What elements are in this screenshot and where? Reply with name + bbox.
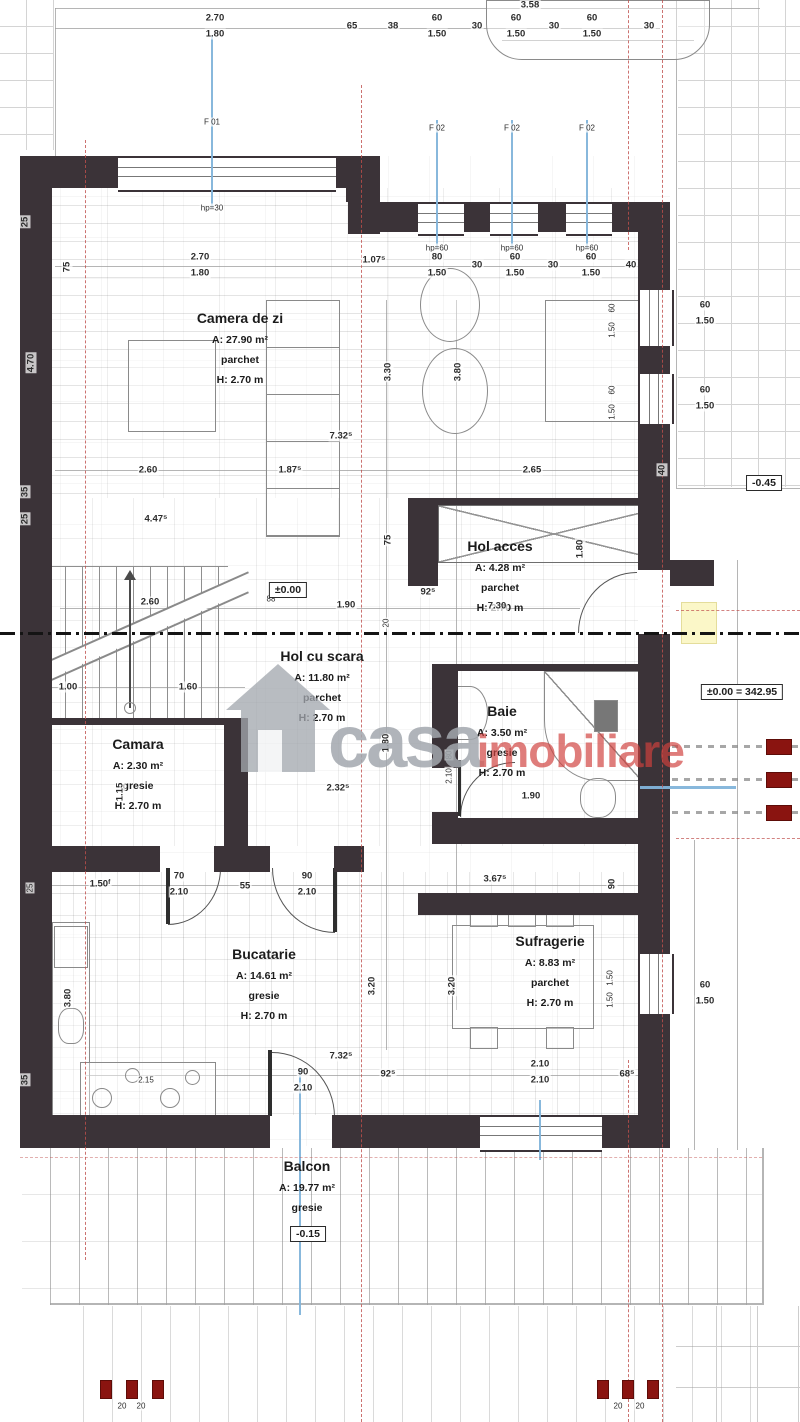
dimension-label: F 01 — [203, 118, 221, 127]
wall-segment — [638, 346, 670, 374]
dimension-label: 20 — [613, 1402, 624, 1411]
room-floor: gresie — [477, 747, 527, 759]
dimension-label: 35 — [20, 1074, 31, 1087]
window-centerline — [511, 120, 513, 248]
dimension-label: 68⁵ — [618, 1069, 635, 1080]
red-marker — [126, 1380, 138, 1399]
red-marker — [100, 1380, 112, 1399]
axis-line — [361, 85, 362, 1422]
wall-segment — [438, 498, 670, 505]
wall-segment — [334, 846, 364, 872]
axis-line — [85, 140, 86, 1260]
wall-segment — [20, 156, 52, 1148]
room-area: A: 8.83 m² — [515, 957, 584, 969]
dimension-label: 3.67⁵ — [483, 874, 508, 885]
window — [638, 374, 674, 424]
room-area: A: 2.30 m² — [112, 760, 163, 772]
wall-segment — [408, 498, 438, 586]
wall-segment — [108, 156, 118, 188]
room-hol-cu-scara: Hol cu scara A: 11.80 m² parchet H: 2.70… — [280, 648, 363, 724]
dimension-label: 1.50 — [606, 969, 615, 987]
dimension-label: 1.07⁵ — [362, 255, 387, 266]
dimension-label: 60 — [608, 385, 617, 396]
fridge-outline — [54, 926, 88, 968]
wall-segment — [458, 664, 644, 671]
wall-segment — [670, 560, 714, 586]
wall-segment — [602, 1115, 670, 1148]
dimension-label: 1.90 — [336, 600, 357, 611]
room-floor: parchet — [280, 692, 363, 704]
room-name: Camara — [112, 736, 163, 752]
balcony-edge-line — [50, 1303, 762, 1305]
dimension-label: 60 — [585, 252, 598, 263]
wall-segment — [214, 846, 270, 872]
door-leaf — [333, 868, 337, 932]
dimension-label: 1.50 — [427, 29, 448, 40]
plant-outline — [420, 268, 480, 342]
wall-segment — [348, 156, 380, 234]
axis-line — [628, 1060, 629, 1422]
room-height: H: 2.70 m — [232, 1010, 296, 1022]
dimension-label: 60 — [699, 980, 712, 991]
wall-segment — [380, 202, 418, 232]
dimension-label: 1.50 — [695, 316, 716, 327]
dimension-label: 1.00 — [58, 682, 79, 693]
dimension-label: 60 — [431, 13, 444, 24]
dimension-line — [28, 885, 663, 886]
dimension-label: 65 — [346, 21, 359, 32]
dimension-label: 25 — [20, 513, 31, 526]
dimension-label: 2.32⁵ — [326, 783, 351, 794]
construction-line — [676, 0, 677, 488]
dimension-label: 20 — [382, 618, 391, 629]
stair-direction-line — [129, 578, 131, 708]
dimension-label: 4.70 — [26, 353, 37, 374]
room-name: Hol acces — [467, 538, 532, 554]
dimension-label: F 02 — [578, 124, 596, 133]
window — [490, 202, 538, 236]
dimension-label: 3.30 — [383, 362, 394, 383]
dimension-label: 30 — [643, 21, 656, 32]
dimension-label: 20 — [635, 1402, 646, 1411]
dimension-label: 1.80 — [205, 29, 226, 40]
room-area: A: 4.28 m² — [467, 562, 532, 574]
wall-segment — [52, 156, 108, 188]
window-centerline — [539, 1100, 541, 1160]
dimension-label: 40 — [625, 260, 638, 271]
dimension-label: 80 — [445, 750, 454, 761]
room-name: Balcon — [279, 1158, 335, 1174]
red-marker — [647, 1380, 659, 1399]
room-area: A: 19.77 m² — [279, 1182, 335, 1194]
dimension-label: 1.50 — [505, 268, 526, 279]
dimension-label: hp=30 — [200, 204, 224, 213]
dimension-label: 3.80 — [453, 362, 464, 383]
window — [480, 1115, 602, 1152]
room-floor: gresie — [232, 990, 296, 1002]
dimension-label: 38 — [387, 21, 400, 32]
dimension-label: 1.80 — [381, 733, 392, 754]
axis-line — [20, 1157, 762, 1158]
section-line — [0, 632, 800, 635]
shower-head — [594, 700, 618, 732]
red-marker — [622, 1380, 634, 1399]
dimension-label: 2.65 — [522, 465, 543, 476]
dimension-label: 90 — [607, 878, 618, 891]
room-height: H: 2.70 m — [197, 374, 283, 386]
axis-line — [662, 0, 663, 1422]
dimension-label: 92⁵ — [419, 587, 436, 598]
stove-burner — [160, 1088, 180, 1108]
room-height: H: 2.70 m — [477, 767, 527, 779]
elevation-marker: ±0.00 = 342.95 — [701, 684, 783, 700]
room-area: A: 27.90 m² — [197, 334, 283, 346]
dimension-label: 3.20 — [447, 976, 458, 997]
dimension-label: 7.32⁵ — [329, 1051, 354, 1062]
dimension-label: 1.50 — [608, 321, 617, 339]
balcony-edge-line — [762, 1148, 764, 1305]
wall-segment — [20, 1115, 270, 1148]
red-marker — [597, 1380, 609, 1399]
axis-line — [676, 610, 800, 611]
room-name: Camera de zi — [197, 310, 283, 326]
wall-segment — [20, 846, 160, 872]
elevation-marker: -0.15 — [290, 1226, 326, 1242]
dimension-label: 1.50 — [606, 991, 615, 1009]
wall-segment — [638, 424, 670, 570]
dimension-label: 90 — [297, 1067, 310, 1078]
window-centerline — [586, 120, 588, 248]
dimension-label: 55 — [239, 881, 252, 892]
room-floor: parchet — [467, 582, 532, 594]
room-baie: Baie A: 3.50 m² gresie H: 2.70 m — [477, 703, 527, 779]
dimension-label: F 02 — [428, 124, 446, 133]
dimension-label: 7.32⁵ — [329, 431, 354, 442]
door-leaf — [458, 760, 461, 816]
dimension-label: 2.70 — [190, 252, 211, 263]
dimension-label: 25 — [26, 883, 35, 894]
room-name: Hol cu scara — [280, 648, 363, 664]
room-area: A: 14.61 m² — [232, 970, 296, 982]
axis-line — [628, 0, 629, 250]
red-marker — [766, 739, 792, 755]
construction-line — [737, 560, 738, 1150]
stove-burner — [185, 1070, 200, 1085]
dimension-label: 2.10 — [530, 1075, 551, 1086]
dimension-label: 1.50 — [427, 268, 448, 279]
balcony-deck-pattern — [22, 1148, 762, 1305]
room-floor: parchet — [197, 354, 283, 366]
exterior-paving-pattern — [678, 0, 800, 487]
wall-segment — [538, 202, 566, 232]
construction-line — [55, 8, 56, 156]
dimension-label: 80 — [431, 252, 444, 263]
dimension-label: 1.60 — [178, 682, 199, 693]
dimension-label: 1.50ᶠ — [89, 879, 112, 890]
dimension-label: 2.10 — [293, 1083, 314, 1094]
dimension-label: 60 — [608, 303, 617, 314]
dimension-label: 2.70 — [205, 13, 226, 24]
kitchen-sink — [58, 1008, 84, 1044]
dimension-label: 60 — [509, 252, 522, 263]
red-marker — [766, 805, 792, 821]
wall-segment — [638, 232, 670, 290]
stair-start-marker — [124, 702, 136, 714]
balcony-deck-pattern — [55, 1306, 762, 1422]
dimension-label: 75 — [62, 261, 73, 274]
exterior-paving-pattern — [0, 0, 54, 150]
elevation-marker: -0.45 — [746, 475, 782, 491]
room-balcon: Balcon A: 19.77 m² gresie — [279, 1158, 335, 1214]
window — [118, 156, 336, 192]
dimension-label: 92⁵ — [379, 1069, 396, 1080]
window — [638, 954, 674, 1014]
room-floor: gresie — [279, 1202, 335, 1214]
dimension-label: 70 — [173, 871, 186, 882]
wall-segment — [20, 718, 248, 725]
dimension-label: 3.80 — [63, 988, 74, 1009]
window-centerline — [436, 120, 438, 248]
bed-outline — [545, 300, 639, 422]
dimension-label: 30 — [471, 260, 484, 271]
room-area: A: 11.80 m² — [280, 672, 363, 684]
room-sufragerie: Sufragerie A: 8.83 m² parchet H: 2.70 m — [515, 933, 584, 1009]
dimension-label: 25 — [20, 216, 31, 229]
construction-line — [386, 300, 387, 1050]
dimension-label: 2.60 — [138, 465, 159, 476]
dimension-label: 7.30 — [487, 601, 508, 612]
wall-segment — [418, 893, 670, 915]
dimension-label: 3.58 — [520, 0, 541, 11]
red-marker — [766, 772, 792, 788]
stove-burner — [92, 1088, 112, 1108]
dimension-line — [55, 266, 655, 267]
dimension-label: 1.50 — [581, 268, 602, 279]
wall-segment — [332, 1115, 480, 1148]
elevation-marker: ±0.00 — [269, 582, 307, 598]
dimension-label: 30 — [548, 21, 561, 32]
dimension-label: 1.80 — [575, 539, 586, 560]
dimension-label: 60 — [510, 13, 523, 24]
dimension-label: 30 — [471, 21, 484, 32]
dimension-label: 1.15 — [115, 782, 126, 803]
dimension-label: 2.10 — [530, 1059, 551, 1070]
wall-segment — [224, 718, 248, 854]
dimension-label: 20 — [136, 1402, 147, 1411]
chair-outline — [546, 1027, 574, 1049]
dimension-label: 1.80 — [190, 268, 211, 279]
dimension-label: 2.15 — [137, 1076, 155, 1085]
dimension-label: 2.10 — [169, 887, 190, 898]
dimension-label: 4.47⁵ — [144, 514, 169, 525]
room-floor: parchet — [515, 977, 584, 989]
dimension-label: 40 — [657, 464, 668, 477]
dimension-label: 1.90 — [521, 791, 542, 802]
dimension-label: 1.50 — [506, 29, 527, 40]
room-camera-de-zi: Camera de zi A: 27.90 m² parchet H: 2.70… — [197, 310, 283, 386]
room-bucatarie: Bucatarie A: 14.61 m² gresie H: 2.70 m — [232, 946, 296, 1022]
dimension-label: 2.10 — [445, 767, 454, 785]
wall-segment — [432, 818, 644, 844]
wall-segment — [464, 202, 490, 232]
door-leaf — [268, 1050, 272, 1116]
dimension-label: 20 — [117, 1402, 128, 1411]
wall-segment — [336, 156, 346, 188]
toilet-outline — [580, 778, 616, 818]
dimension-label: 75 — [383, 534, 394, 547]
room-name: Baie — [477, 703, 527, 719]
room-name: Sufragerie — [515, 933, 584, 949]
room-height: H: 2.70 m — [515, 997, 584, 1009]
window — [638, 290, 674, 346]
dimension-label: 35 — [20, 486, 31, 499]
dimension-label: 2.10 — [297, 887, 318, 898]
dimension-label: 60 — [586, 13, 599, 24]
dimension-label: 1.50 — [582, 29, 603, 40]
room-area: A: 3.50 m² — [477, 727, 527, 739]
dimension-label: 60 — [699, 385, 712, 396]
floor-plan: Camera de zi A: 27.90 m² parchet H: 2.70… — [0, 0, 800, 1422]
stair-arrow-icon — [124, 570, 136, 580]
window — [566, 202, 612, 236]
dimension-label: 3.20 — [367, 976, 378, 997]
dimension-label: 1.87⁵ — [278, 465, 303, 476]
room-name: Bucatarie — [232, 946, 296, 962]
dimension-label: 1.50 — [608, 403, 617, 421]
dimension-label: 60 — [699, 300, 712, 311]
dimension-label: 90 — [301, 871, 314, 882]
dimension-label: 1.50 — [695, 401, 716, 412]
dimension-label: F 02 — [503, 124, 521, 133]
room-height: H: 2.70 m — [280, 712, 363, 724]
dimension-label: 30 — [547, 260, 560, 271]
utility-line — [640, 786, 736, 789]
chair-outline — [470, 1027, 498, 1049]
red-marker — [152, 1380, 164, 1399]
highlight-square — [681, 602, 717, 644]
dimension-label: 1.50 — [695, 996, 716, 1007]
dimension-label: 2.60 — [140, 597, 161, 608]
axis-line — [676, 838, 800, 839]
window — [418, 202, 464, 236]
